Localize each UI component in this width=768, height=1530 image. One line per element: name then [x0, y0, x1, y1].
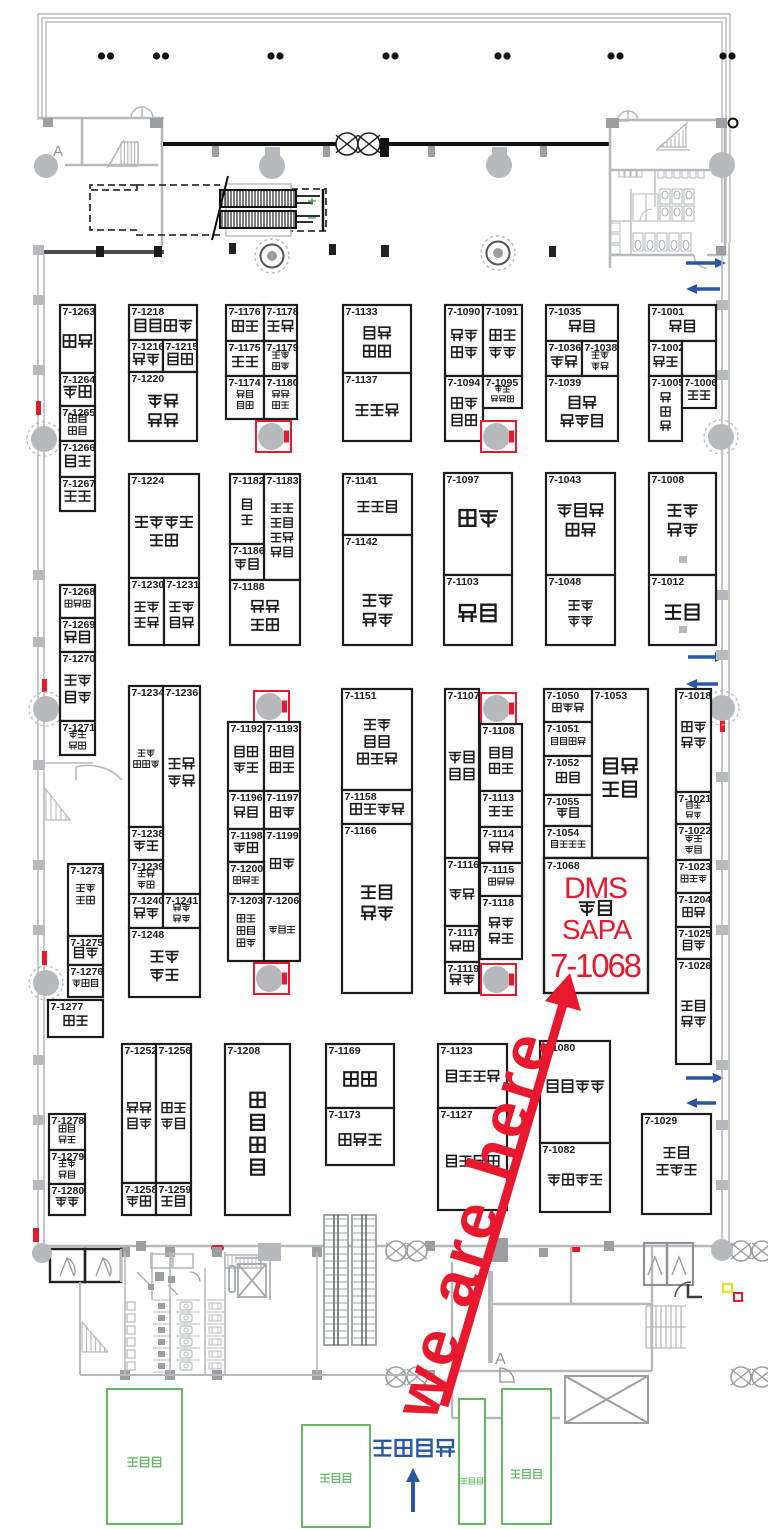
svg-text:7-1197: 7-1197	[267, 792, 299, 804]
svg-text:7-1270: 7-1270	[63, 653, 96, 665]
svg-text:7-1114: 7-1114	[483, 828, 515, 840]
svg-text:7-1142: 7-1142	[346, 536, 378, 548]
svg-text:7-1264: 7-1264	[63, 374, 96, 386]
svg-text:7-1220: 7-1220	[132, 373, 165, 385]
svg-text:7-1012: 7-1012	[652, 576, 685, 588]
svg-text:7-1133: 7-1133	[346, 306, 378, 318]
svg-text:7-1005: 7-1005	[652, 377, 685, 389]
svg-text:7-1278: 7-1278	[52, 1115, 85, 1127]
svg-text:7-1029: 7-1029	[645, 1115, 678, 1127]
svg-text:7-1107: 7-1107	[448, 690, 480, 702]
svg-text:7-1018: 7-1018	[679, 690, 712, 702]
svg-text:7-1252: 7-1252	[125, 1045, 158, 1057]
svg-text:7-1178: 7-1178	[267, 306, 299, 318]
svg-text:7-1199: 7-1199	[267, 830, 299, 842]
svg-text:7-1036: 7-1036	[549, 342, 582, 354]
svg-text:7-1241: 7-1241	[166, 895, 199, 907]
svg-text:7-1180: 7-1180	[267, 377, 299, 389]
svg-text:7-1215: 7-1215	[166, 341, 199, 353]
svg-text:7-1116: 7-1116	[448, 859, 480, 871]
svg-text:7-1183: 7-1183	[267, 475, 299, 487]
svg-text:7-1103: 7-1103	[447, 576, 479, 588]
svg-text:7-1043: 7-1043	[549, 474, 582, 486]
svg-text:7-1182: 7-1182	[233, 475, 265, 487]
svg-text:7-1192: 7-1192	[231, 723, 263, 735]
svg-text:7-1266: 7-1266	[63, 442, 96, 454]
svg-text:7-1006: 7-1006	[685, 377, 718, 389]
svg-text:7-1117: 7-1117	[448, 927, 480, 939]
svg-text:7-1123: 7-1123	[441, 1045, 473, 1057]
svg-text:7-1234: 7-1234	[132, 687, 165, 699]
svg-text:7-1053: 7-1053	[595, 690, 628, 702]
svg-text:7-1097: 7-1097	[447, 474, 480, 486]
svg-text:7-1055: 7-1055	[547, 796, 580, 808]
svg-text:7-1204: 7-1204	[679, 894, 712, 906]
svg-text:7-1119: 7-1119	[448, 963, 480, 975]
svg-text:7-1259: 7-1259	[159, 1184, 192, 1196]
svg-text:7-1118: 7-1118	[483, 897, 515, 909]
svg-text:SAPA: SAPA	[562, 914, 632, 945]
svg-text:7-1025: 7-1025	[679, 928, 712, 940]
svg-text:7-1068: 7-1068	[547, 860, 580, 872]
svg-text:7-1050: 7-1050	[547, 690, 580, 702]
svg-text:7-1175: 7-1175	[229, 342, 261, 354]
svg-text:7-1206: 7-1206	[267, 895, 300, 907]
svg-text:7-1198: 7-1198	[231, 830, 263, 842]
svg-text:7-1273: 7-1273	[71, 865, 104, 877]
svg-text:7-1026: 7-1026	[679, 960, 712, 972]
svg-text:7-1158: 7-1158	[345, 791, 377, 803]
svg-text:7-1267: 7-1267	[63, 478, 96, 490]
svg-text:7-1090: 7-1090	[448, 306, 481, 318]
svg-text:7-1280: 7-1280	[52, 1185, 85, 1197]
svg-text:7-1051: 7-1051	[547, 723, 580, 735]
svg-text:7-1108: 7-1108	[483, 725, 515, 737]
svg-text:7-1039: 7-1039	[549, 377, 582, 389]
svg-text:7-1240: 7-1240	[132, 895, 165, 907]
svg-text:7-1095: 7-1095	[486, 377, 519, 389]
svg-text:7-1082: 7-1082	[543, 1144, 576, 1156]
svg-text:7-1256: 7-1256	[159, 1045, 192, 1057]
svg-text:7-1271: 7-1271	[63, 722, 96, 734]
svg-text:7-1151: 7-1151	[345, 690, 377, 702]
svg-text:DMS: DMS	[564, 872, 628, 905]
svg-text:7-1115: 7-1115	[483, 864, 515, 876]
svg-text:7-1248: 7-1248	[132, 929, 165, 941]
svg-text:7-1113: 7-1113	[483, 792, 515, 804]
svg-text:7-1231: 7-1231	[167, 579, 200, 591]
svg-text:7-1048: 7-1048	[549, 576, 582, 588]
svg-text:7-1091: 7-1091	[486, 306, 519, 318]
svg-text:7-1137: 7-1137	[346, 374, 378, 386]
svg-text:7-1230: 7-1230	[132, 579, 165, 591]
svg-text:7-1176: 7-1176	[229, 306, 261, 318]
svg-text:7-1218: 7-1218	[132, 306, 165, 318]
svg-text:7-1238: 7-1238	[132, 828, 165, 840]
svg-text:A: A	[495, 1351, 506, 1368]
svg-text:7-1141: 7-1141	[346, 475, 378, 487]
svg-text:7-1200: 7-1200	[231, 863, 264, 875]
svg-text:7-1052: 7-1052	[547, 757, 580, 769]
svg-text:7-1236: 7-1236	[166, 687, 199, 699]
svg-text:7-1269: 7-1269	[63, 619, 96, 631]
svg-text:7-1166: 7-1166	[345, 825, 377, 837]
svg-text:7-1068: 7-1068	[550, 947, 642, 984]
svg-text:7-1008: 7-1008	[652, 474, 685, 486]
svg-text:7-1263: 7-1263	[63, 306, 96, 318]
svg-text:7-1277: 7-1277	[51, 1001, 84, 1013]
svg-text:7-1054: 7-1054	[547, 827, 580, 839]
svg-text:7-1208: 7-1208	[228, 1045, 261, 1057]
svg-text:7-1203: 7-1203	[231, 895, 264, 907]
svg-text:A: A	[53, 143, 63, 160]
svg-text:7-1021: 7-1021	[679, 793, 712, 805]
svg-text:7-1001: 7-1001	[652, 306, 685, 318]
svg-text:7-1279: 7-1279	[52, 1151, 85, 1163]
svg-text:7-1094: 7-1094	[448, 377, 481, 389]
svg-text:7-1169: 7-1169	[329, 1045, 361, 1057]
svg-text:7-1276: 7-1276	[71, 966, 104, 978]
svg-text:7-1224: 7-1224	[132, 475, 165, 487]
svg-text:7-1216: 7-1216	[132, 341, 165, 353]
svg-text:7-1002: 7-1002	[652, 342, 685, 354]
svg-text:7-1186: 7-1186	[233, 545, 265, 557]
svg-text:7-1258: 7-1258	[125, 1184, 158, 1196]
svg-text:7-1268: 7-1268	[63, 586, 96, 598]
svg-text:7-1196: 7-1196	[231, 792, 263, 804]
svg-text:7-1174: 7-1174	[229, 377, 261, 389]
svg-text:7-1173: 7-1173	[329, 1109, 361, 1121]
svg-text:7-1193: 7-1193	[267, 723, 299, 735]
svg-text:7-1239: 7-1239	[132, 861, 165, 873]
svg-text:7-1023: 7-1023	[679, 861, 712, 873]
svg-text:7-1035: 7-1035	[549, 306, 582, 318]
svg-text:7-1188: 7-1188	[233, 581, 265, 593]
